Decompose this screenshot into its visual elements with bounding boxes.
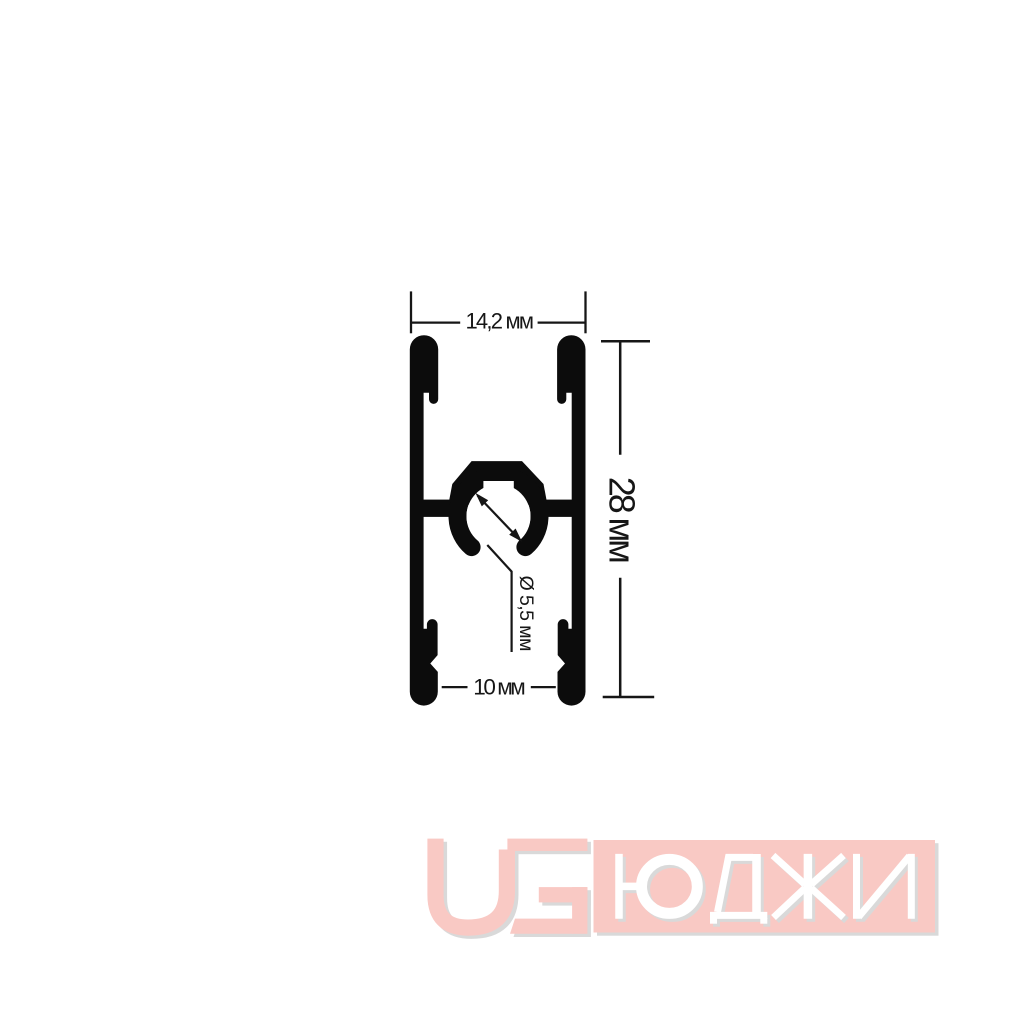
svg-text:10 мм: 10 мм — [473, 674, 526, 699]
svg-text:Ø 5,5 мм: Ø 5,5 мм — [515, 576, 537, 651]
svg-text:28 мм: 28 мм — [602, 477, 643, 562]
svg-text:14,2 мм: 14,2 мм — [465, 308, 534, 333]
